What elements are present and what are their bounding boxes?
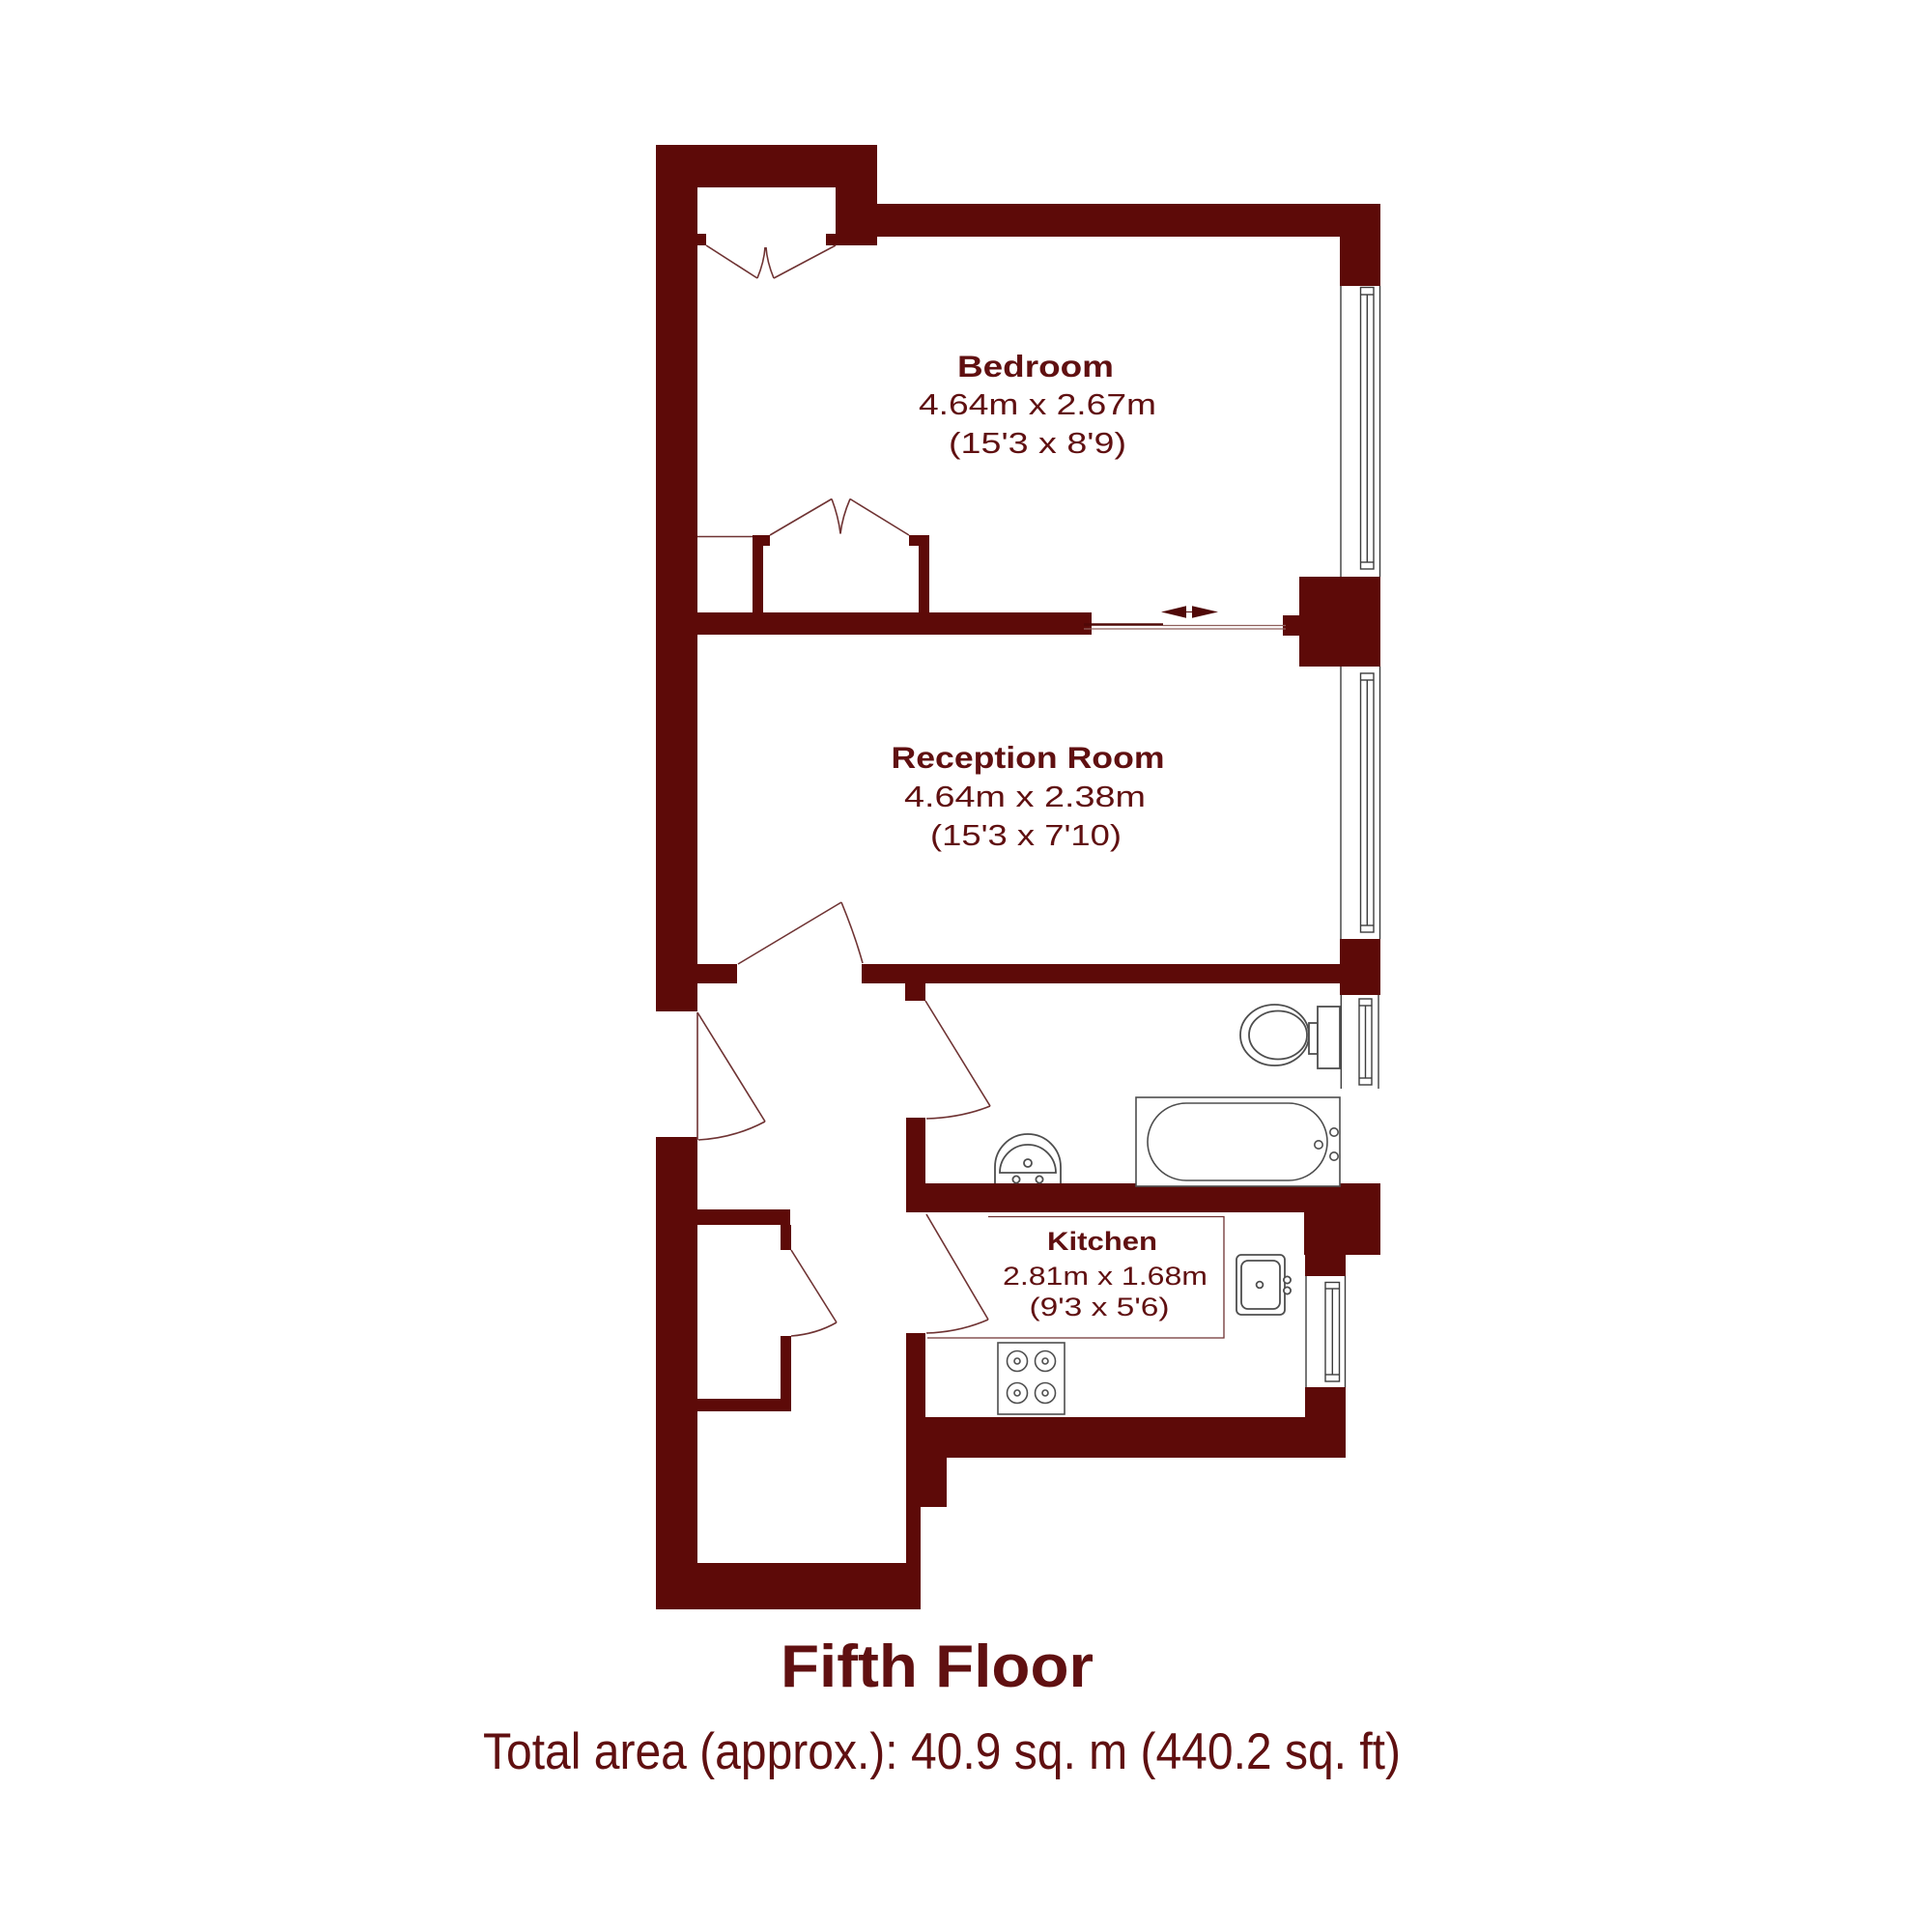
- svg-text:Reception Room: Reception Room: [892, 740, 1165, 775]
- svg-text:Total area (approx.): 40.9 sq.: Total area (approx.): 40.9 sq. m (440.2 …: [483, 1723, 1401, 1780]
- svg-text:(15'3 x 7'10): (15'3 x 7'10): [930, 818, 1122, 852]
- svg-text:Fifth Floor: Fifth Floor: [781, 1634, 1094, 1700]
- svg-text:4.64m x 2.38m: 4.64m x 2.38m: [904, 780, 1146, 813]
- svg-text:Bedroom: Bedroom: [957, 349, 1114, 384]
- svg-text:2.81m x 1.68m: 2.81m x 1.68m: [1003, 1262, 1207, 1291]
- svg-text:Kitchen: Kitchen: [1047, 1227, 1157, 1256]
- svg-text:(9'3 x 5'6): (9'3 x 5'6): [1030, 1293, 1170, 1321]
- svg-text:4.64m x 2.67m: 4.64m x 2.67m: [919, 387, 1156, 421]
- svg-text:(15'3 x 8'9): (15'3 x 8'9): [949, 426, 1126, 460]
